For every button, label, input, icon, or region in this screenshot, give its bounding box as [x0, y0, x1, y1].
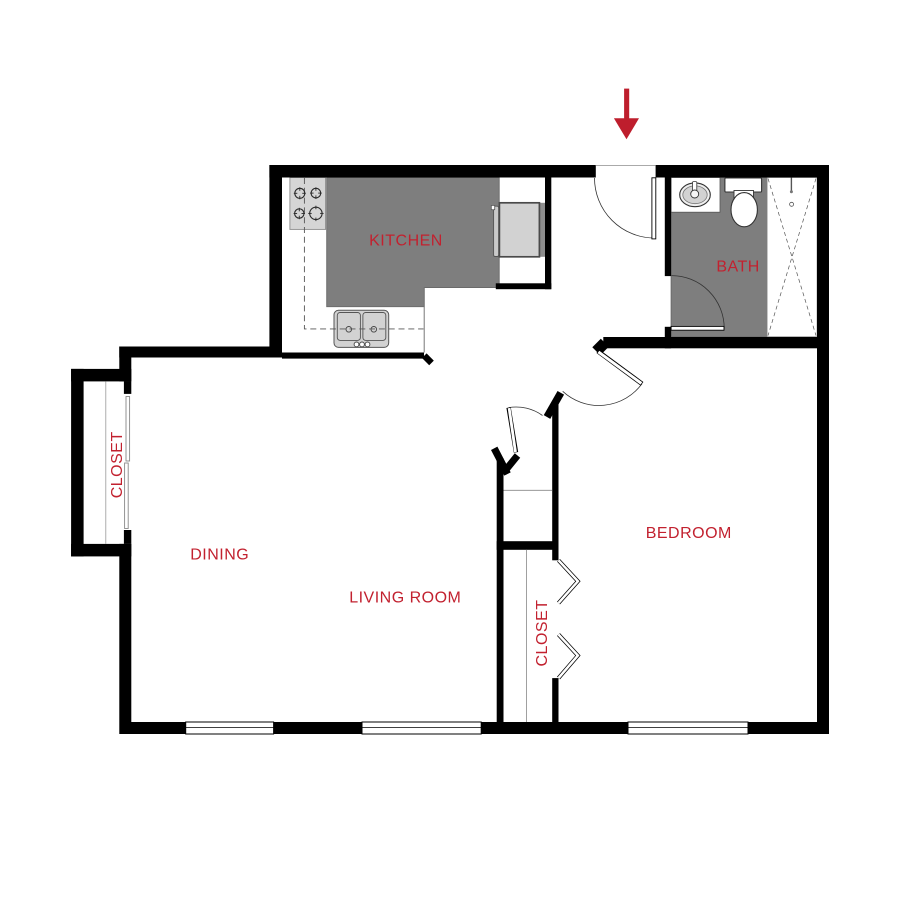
svg-text:KITCHEN: KITCHEN — [369, 233, 443, 250]
svg-text:LIVING ROOM: LIVING ROOM — [349, 590, 461, 607]
svg-text:CLOSET: CLOSET — [109, 431, 126, 498]
svg-text:CLOSET: CLOSET — [534, 599, 551, 666]
svg-text:DINING: DINING — [190, 546, 249, 563]
svg-text:BATH: BATH — [716, 259, 759, 276]
svg-text:BEDROOM: BEDROOM — [646, 525, 732, 542]
